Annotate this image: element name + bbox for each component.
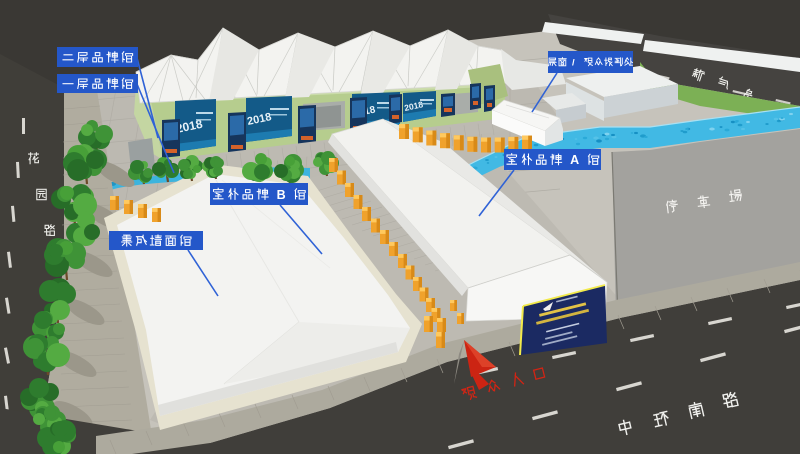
svg-text:B: B (277, 188, 286, 202)
svg-text:/: / (572, 58, 575, 69)
svg-text:A: A (570, 153, 579, 167)
